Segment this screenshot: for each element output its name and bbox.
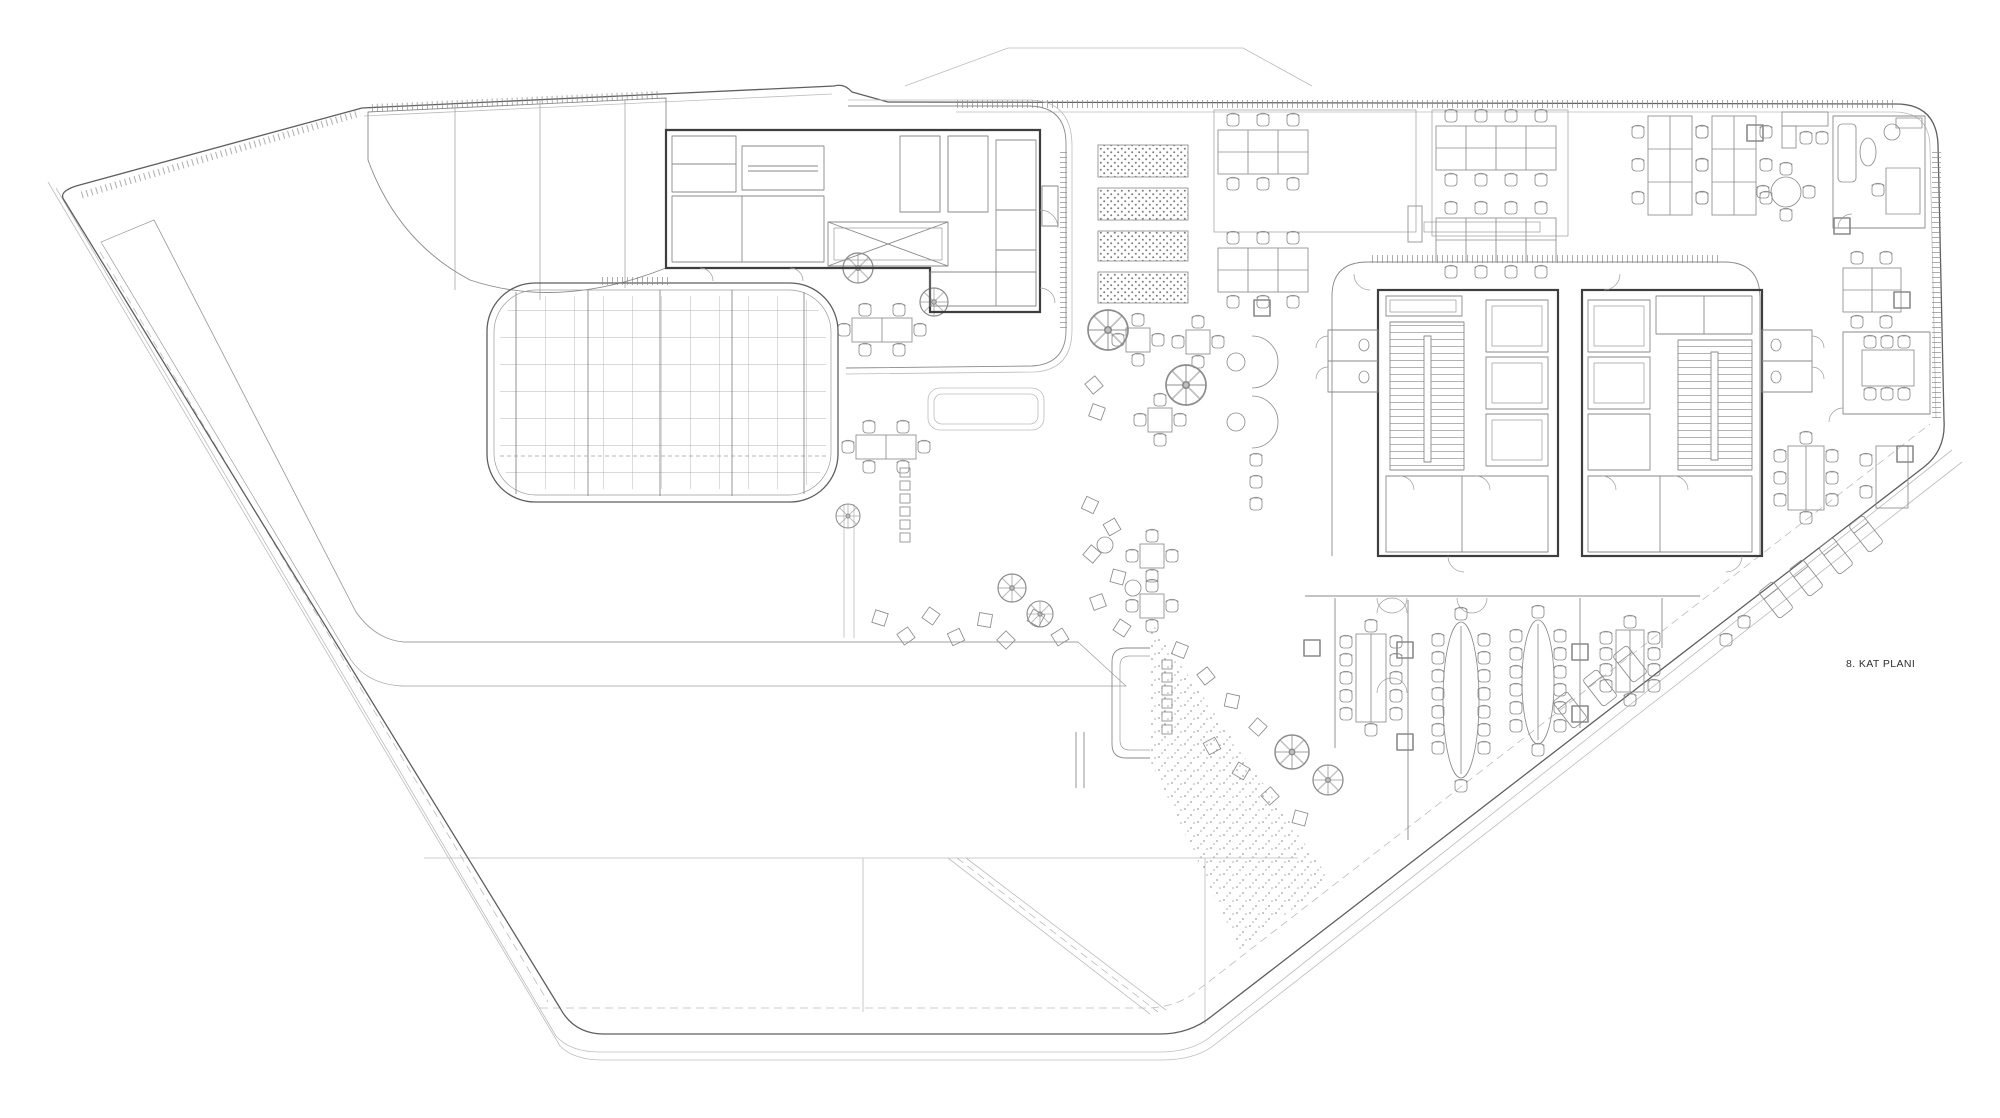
core-small-stair-v [900, 136, 988, 212]
core-small-rooms [672, 136, 1036, 306]
private-office [1833, 116, 1925, 228]
servery-counter [1112, 648, 1150, 758]
sunbed-row [1552, 515, 1883, 729]
deck-tick-strip [1060, 152, 1067, 328]
long-table-2 [1432, 607, 1491, 792]
long-table-4 [1600, 615, 1661, 706]
partition-a [1214, 110, 1416, 232]
canteen [1305, 596, 1700, 840]
ramp-band-center [957, 858, 1158, 1012]
floor-label: 8. KAT PLANI [1846, 658, 1915, 670]
core-small-stair-h [742, 146, 824, 190]
canopy-outline [905, 48, 1312, 86]
skylight-grid [500, 296, 826, 489]
reception-desk [1782, 112, 1829, 148]
core-small [666, 130, 1058, 312]
louver-roof [368, 91, 666, 300]
site-outlines [48, 48, 1962, 1060]
stipple-wedge [1150, 620, 1330, 950]
building-silhouette [63, 85, 1945, 1034]
long-table-3 [1510, 605, 1567, 756]
facade-tick-strip-right [1932, 150, 1941, 418]
building-outline [63, 85, 1945, 1034]
core-small-shaft [1042, 186, 1058, 226]
ramp-band [948, 858, 1166, 1014]
skylight [487, 277, 838, 502]
desk-cluster-2x2 [1843, 251, 1901, 328]
copy-point [1408, 206, 1540, 242]
conference-table-8 [1774, 431, 1839, 524]
louver-field [368, 98, 666, 293]
desk-clusters [1218, 109, 1901, 328]
atrium-tick-strip [1372, 255, 1720, 263]
terrace-tables [838, 303, 1225, 632]
planter-box-column [900, 468, 910, 542]
terrace [101, 100, 1343, 950]
floor-plan-canvas: 8. KAT PLANI [0, 0, 2000, 1118]
bridge-to-skylight [844, 504, 854, 638]
core-small-doors [700, 210, 1058, 303]
columns [1254, 125, 1913, 750]
terrace-deck-edge [846, 106, 1066, 368]
facade-tick-strip-top [956, 100, 1896, 108]
site-dashed-left [100, 252, 548, 1002]
terrace-deck-edge-outer [846, 100, 1072, 374]
louver-mullions [455, 99, 625, 300]
servery-wall [1076, 732, 1084, 788]
central-core [1316, 274, 1824, 572]
cafe-deck-planter [928, 388, 1044, 430]
wc-right [1762, 330, 1824, 392]
facade-tick-strip-slope [79, 110, 361, 199]
long-table-1 [1340, 619, 1403, 736]
planter-panels [1098, 145, 1188, 303]
elevator-x [828, 222, 948, 266]
core-small-walls [666, 130, 1040, 312]
wc-left [1316, 330, 1378, 392]
skylight-tick-strip [598, 277, 670, 285]
floor-plan-sheet: 8. KAT PLANI [0, 0, 2000, 1118]
site-mid-line [56, 188, 1952, 1052]
